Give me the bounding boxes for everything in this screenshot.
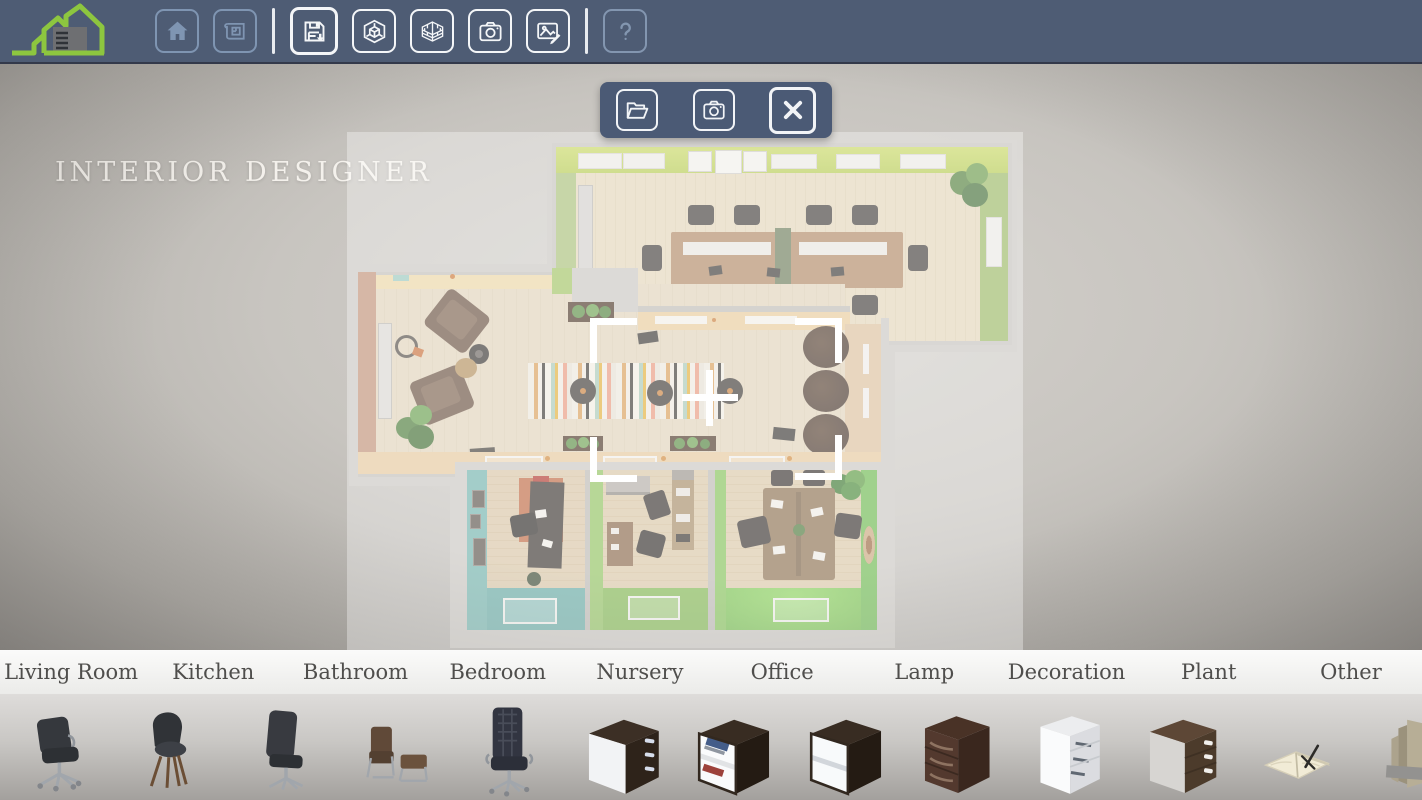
- category-tab-office[interactable]: Office: [711, 650, 853, 694]
- camera-button[interactable]: [468, 9, 512, 53]
- selection-bracket-bl: [590, 437, 637, 482]
- furniture-item-cube-shelf-empty[interactable]: [795, 700, 899, 800]
- furniture-item-pedestal-dark[interactable]: [907, 700, 1011, 800]
- category-tab-kitchen[interactable]: Kitchen: [142, 650, 284, 694]
- furniture-item-swivel-chair[interactable]: [234, 700, 338, 800]
- toolbar-separator: [272, 8, 275, 54]
- category-tab-bathroom[interactable]: Bathroom: [284, 650, 426, 694]
- furniture-item-side-chair[interactable]: [122, 700, 226, 800]
- furniture-item-open-notebook[interactable]: [1244, 700, 1348, 800]
- category-tab-other[interactable]: Other: [1280, 650, 1422, 694]
- category-tabs: Living RoomKitchenBathroomBedroomNursery…: [0, 650, 1422, 696]
- selection-bracket-tl: [590, 318, 637, 363]
- top-toolbar: [0, 0, 1422, 64]
- camera-icon: [701, 97, 727, 123]
- furniture-item-drawer-box-white-front[interactable]: [571, 700, 675, 800]
- home-icon: [164, 18, 191, 45]
- capture-dialog: [600, 82, 832, 138]
- view-3d-button[interactable]: [352, 9, 396, 53]
- category-tab-plant[interactable]: Plant: [1138, 650, 1280, 694]
- modal-fade-overlay: [347, 132, 1023, 650]
- furniture-item-pedestal-white[interactable]: [1019, 700, 1123, 800]
- camera-icon: [477, 18, 504, 45]
- toolbar-buttons: [148, 7, 654, 55]
- floorplan-button[interactable]: [213, 9, 257, 53]
- design-canvas[interactable]: INTERIOR DESIGNER: [0, 62, 1422, 650]
- furniture-item-cube-shelf-books[interactable]: [683, 700, 787, 800]
- category-tab-bedroom[interactable]: Bedroom: [427, 650, 569, 694]
- category-tab-living-room[interactable]: Living Room: [0, 650, 142, 694]
- open-project-button[interactable]: [616, 89, 658, 131]
- furniture-item-pedestal-brown[interactable]: [1132, 700, 1236, 800]
- furniture-item-executive-chair[interactable]: [459, 700, 563, 800]
- save-icon: [301, 18, 328, 45]
- help-icon: [612, 18, 639, 45]
- walls-3d-button[interactable]: [410, 9, 454, 53]
- home-button[interactable]: [155, 9, 199, 53]
- folder-open-icon: [624, 97, 650, 123]
- take-photo-button[interactable]: [693, 89, 735, 131]
- toolbar-separator: [585, 8, 588, 54]
- cube-3d-icon: [361, 18, 388, 45]
- selection-bracket-br: [795, 435, 842, 480]
- furniture-item-file-folders[interactable]: [1356, 700, 1422, 800]
- furniture-item-office-chair[interactable]: [10, 700, 114, 800]
- furniture-item-lounge-chair-ottoman[interactable]: [346, 700, 450, 800]
- save-button[interactable]: [290, 7, 338, 55]
- help-button[interactable]: [603, 9, 647, 53]
- screenshot-edit-button[interactable]: [526, 9, 570, 53]
- category-tab-lamp[interactable]: Lamp: [853, 650, 995, 694]
- furniture-strip: [0, 694, 1422, 800]
- floorplan-viewport[interactable]: [355, 140, 1015, 650]
- close-dialog-button[interactable]: [769, 87, 816, 134]
- selection-bracket-tr: [795, 318, 842, 363]
- brick-wall-icon: [419, 18, 446, 45]
- close-x-icon: [780, 97, 806, 123]
- image-edit-icon: [535, 18, 562, 45]
- category-tab-decoration[interactable]: Decoration: [995, 650, 1137, 694]
- green-house-logo: [6, 3, 124, 59]
- crosshair: [706, 370, 713, 426]
- category-tab-nursery[interactable]: Nursery: [569, 650, 711, 694]
- blueprint-icon: [222, 18, 249, 45]
